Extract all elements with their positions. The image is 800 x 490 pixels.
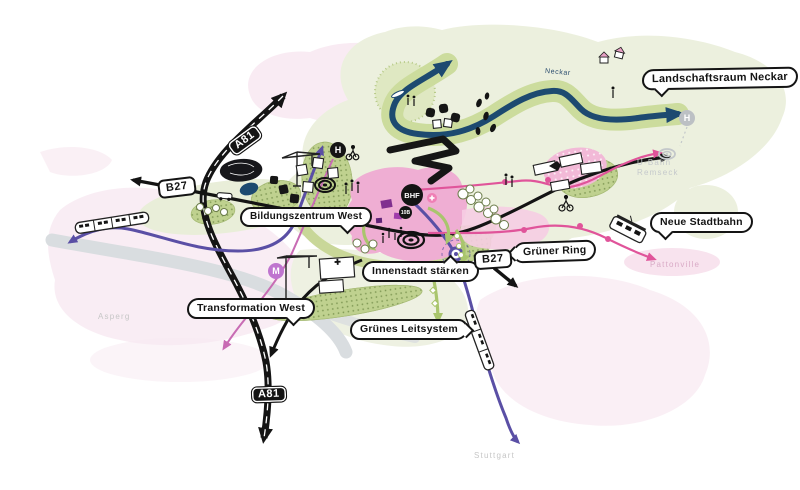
h-stop-east-icon: H	[679, 110, 695, 126]
ubahn-line1: U-Bahn	[637, 158, 679, 168]
callout-label: Neue Stadtbahn	[660, 216, 743, 228]
callout-label: Grüner Ring	[523, 244, 587, 258]
h-stop-west-icon: H	[330, 142, 346, 158]
place-label-stuttgart: Stuttgart	[474, 451, 515, 460]
callout-label: Grünes Leitsystem	[360, 323, 458, 335]
place-label-asperg: Asperg	[98, 312, 131, 321]
place-label-ubahn-remseck: U-Bahn Remseck	[637, 158, 679, 178]
callout-innenstadt-staerken: Innenstadt stärken	[362, 261, 479, 282]
callout-label: Landschaftsraum Neckar	[652, 71, 788, 85]
ubahn-line2: Remseck	[637, 168, 679, 178]
callout-gruenes-leitsystem: Grünes Leitsystem	[350, 319, 468, 340]
b27-southeast-arrow	[494, 268, 516, 286]
callout-gruener-ring: Grüner Ring	[513, 240, 597, 264]
place-label-pattonville: Pattonville	[650, 260, 700, 269]
m-stop-icon: M	[268, 263, 284, 279]
callout-neue-stadtbahn: Neue Stadtbahn	[650, 212, 753, 233]
callout-landschaftsraum-neckar: Landschaftsraum Neckar	[642, 67, 798, 91]
bhf-station-icon: BHF	[401, 184, 423, 206]
road-badge-b27-center: B27	[473, 249, 512, 271]
masterplan-map: Landschaftsraum Neckar Bildungszentrum W…	[0, 0, 800, 490]
callout-label: Transformation West	[197, 302, 305, 314]
callout-transformation-west: Transformation West	[187, 298, 315, 319]
callout-label: Innenstadt stärken	[372, 265, 469, 277]
callout-bildungszentrum-west: Bildungszentrum West	[240, 207, 372, 227]
road-badge-a81-south: A81	[251, 385, 287, 403]
line-10b-icon: 10B	[399, 206, 412, 219]
